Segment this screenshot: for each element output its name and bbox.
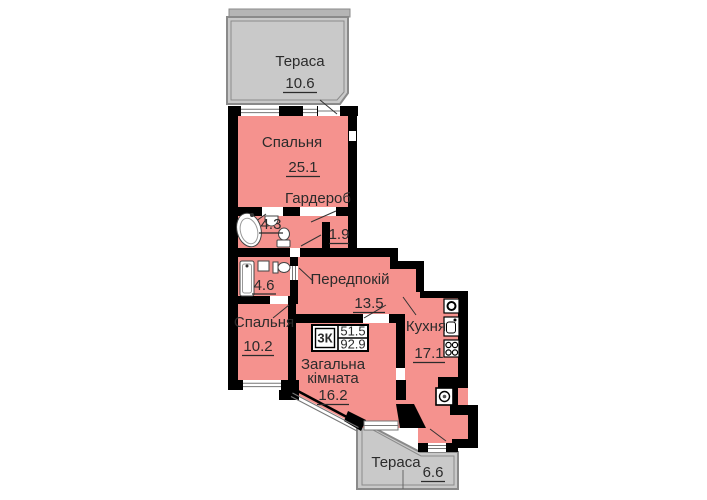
bathtub-faucet xyxy=(250,213,254,217)
wall-kitchen-left-lower xyxy=(396,380,406,400)
window-bedroom2 xyxy=(243,380,281,390)
wall-left-exterior xyxy=(228,106,238,390)
door-hall-lobby xyxy=(290,248,300,257)
floor-plan-page: 3К 51.5 92.9 Тераса 10.6 Спальня 25.1 Га… xyxy=(0,0,707,500)
wall-terrace-door-right xyxy=(446,443,458,452)
kitchen-area: 17.1 xyxy=(414,345,443,362)
kitchen-faucet xyxy=(454,319,457,322)
floor-plan: 3К 51.5 92.9 Тераса 10.6 Спальня 25.1 Га… xyxy=(0,0,707,500)
terrace-bottom-label: Тераса xyxy=(371,454,421,471)
wall-kitchen-left-upper xyxy=(396,314,405,368)
toilet-tank-bathroom2 xyxy=(273,262,278,273)
sink-bathroom2 xyxy=(258,261,269,271)
shower-drain xyxy=(246,265,249,268)
wall-step-3 xyxy=(416,269,424,292)
door-bathroom2 xyxy=(290,266,298,280)
window-bedroom1-left xyxy=(241,106,279,116)
wall-hall-living xyxy=(288,314,363,323)
passage-living-kitchen xyxy=(396,368,405,380)
summary-box: 3К 51.5 92.9 xyxy=(312,324,368,352)
wall-above-hallway xyxy=(238,248,398,257)
total-area-value: 92.9 xyxy=(340,337,365,352)
door-terrace-bottom xyxy=(428,443,446,452)
wall-terrace-door-left xyxy=(418,443,428,452)
bathroom2-area: 4.6 xyxy=(254,277,275,294)
hallway-label: Передпокій xyxy=(311,271,390,288)
toilet-tank-bathroom1 xyxy=(277,240,290,247)
wall-kitchen-bottom-step xyxy=(438,377,468,388)
terrace-top-label: Тераса xyxy=(275,53,325,70)
door-wardrobe xyxy=(300,207,336,216)
terrace-top-area: 10.6 xyxy=(285,75,314,92)
living-room-label-2: кімната xyxy=(307,370,359,387)
bedroom1-area: 25.1 xyxy=(288,159,317,176)
apartment-type: 3К xyxy=(317,331,332,346)
wardrobe-area: 1.9 xyxy=(329,226,350,243)
door-bedroom2 xyxy=(270,296,288,304)
wall-step-1 xyxy=(390,257,398,269)
wall-bath2-right xyxy=(290,257,298,304)
hallway-area: 13.5 xyxy=(354,295,383,312)
wardrobe-label: Гардероб xyxy=(285,190,351,207)
door-living-room xyxy=(363,314,389,323)
living-room-area: 16.2 xyxy=(318,387,347,404)
terrace-top-railing xyxy=(229,9,350,17)
toilet-bowl-bathroom2 xyxy=(278,263,290,273)
kitchen-label: Кухня xyxy=(406,318,446,335)
bathroom1-area: 4.3 xyxy=(261,216,282,233)
window-bedroom1-right xyxy=(303,106,317,116)
bedroom2-area: 10.2 xyxy=(243,338,272,355)
niche-bedroom1-wall xyxy=(349,131,356,141)
wall-step-2 xyxy=(398,261,424,269)
terrace-bottom-area: 6.6 xyxy=(423,464,444,481)
bedroom2-label: Спальня xyxy=(234,314,294,331)
bedroom1-label: Спальня xyxy=(262,134,322,151)
